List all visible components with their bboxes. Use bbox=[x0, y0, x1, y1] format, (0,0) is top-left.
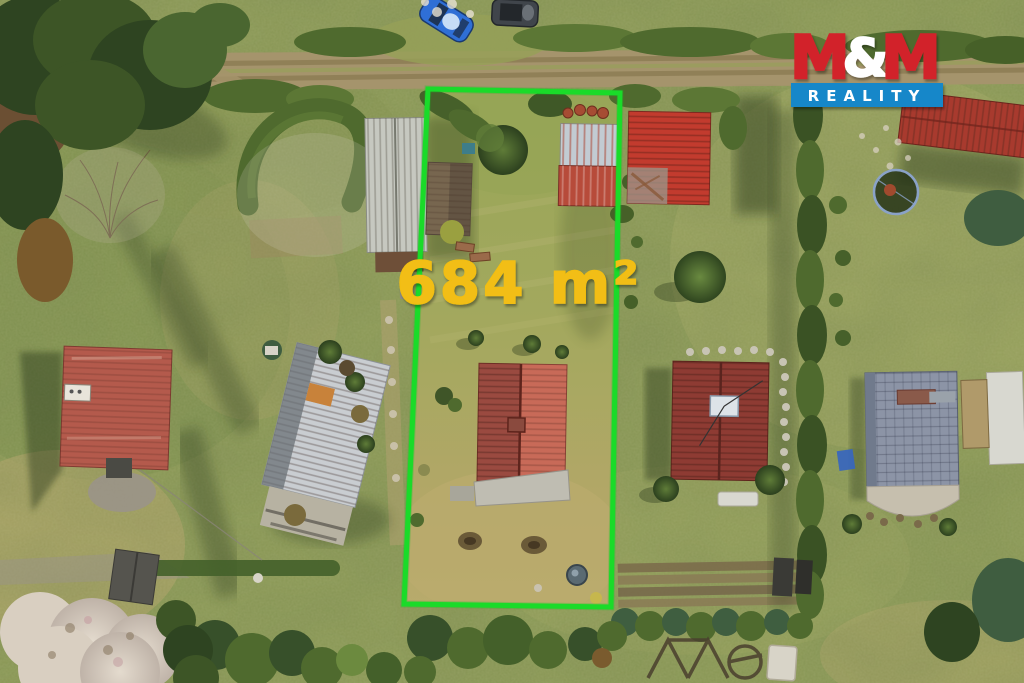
blue-bin bbox=[462, 143, 475, 154]
plot-area-label: 684 m² bbox=[396, 249, 641, 317]
shed-bottom-left bbox=[109, 549, 160, 605]
white-bench bbox=[718, 492, 758, 506]
house-far-slate bbox=[865, 371, 959, 517]
chimney-plot bbox=[508, 418, 525, 432]
blue-tarp bbox=[837, 449, 856, 471]
logo-reality-text: REALITY bbox=[808, 87, 927, 105]
house-plot-red bbox=[477, 363, 567, 483]
lawn-mower bbox=[253, 573, 263, 583]
yellow-shrub bbox=[440, 220, 464, 244]
shed-two-tone bbox=[558, 123, 618, 206]
sandbox-white bbox=[767, 645, 797, 681]
house-topright-red bbox=[627, 111, 711, 204]
logo-mm-text: M&M bbox=[790, 23, 937, 93]
car-dark bbox=[491, 0, 538, 27]
house-right-maroon bbox=[671, 361, 769, 481]
chimney-white bbox=[64, 384, 91, 401]
aerial-property-photo: 684 m² M&M REALITY bbox=[0, 0, 1024, 683]
scene-svg: 684 m² M&M REALITY bbox=[0, 0, 1024, 683]
garden-well bbox=[567, 565, 587, 585]
plot-patio-step bbox=[450, 486, 474, 501]
house-left-red bbox=[60, 346, 172, 470]
realty-logo: M&M REALITY bbox=[790, 23, 943, 107]
trampoline-frame bbox=[874, 170, 918, 214]
